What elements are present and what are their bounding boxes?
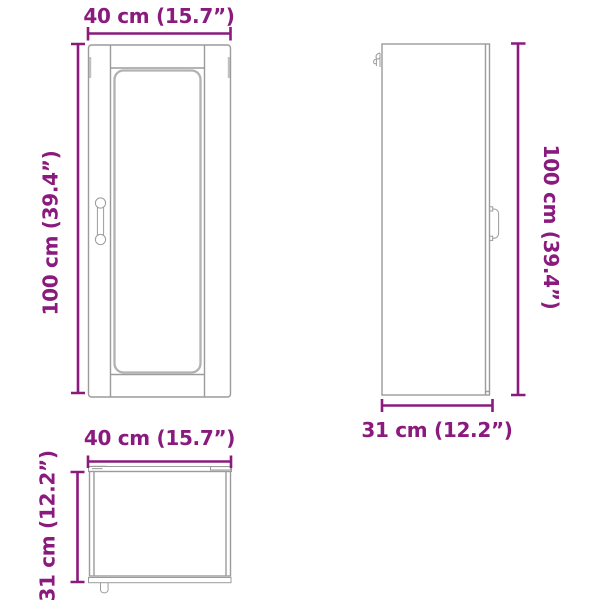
front-height-dimension-line [71,44,85,393]
side-depth-label: 31 cm (12.2”) [361,418,512,442]
side-view-drawing [374,44,499,395]
front-width-dimension-line [88,27,231,41]
top-hinge-mark-left-icon [92,466,107,468]
top-width-label: 40 cm (15.7”) [84,426,235,450]
side-door-handle-icon [490,207,499,241]
dimension-diagram: 40 cm (15.7”) 100 cm (39.4”) 100 cm (39.… [0,0,600,600]
top-depth-label: 31 cm (12.2”) [36,450,60,600]
top-view-drawing [89,466,232,593]
dimension-diagram-page: 40 cm (15.7”) 100 cm (39.4”) 100 cm (39.… [0,0,600,600]
front-height-label: 100 cm (39.4”) [39,151,63,316]
top-door-edge [89,578,232,583]
side-cabinet-body [382,44,490,395]
side-height-dimension-line [511,44,526,396]
top-cabinet-body [90,472,231,577]
front-view-drawing [89,45,231,397]
top-depth-dimension-line [71,472,85,582]
side-hinge-icon [374,53,380,67]
top-hinge-mark-right-icon [211,467,231,470]
front-width-label: 40 cm (15.7”) [83,4,234,28]
top-handle-knob-icon [101,583,109,593]
side-depth-dimension-line [382,399,493,412]
side-height-label: 100 cm (39.4”) [539,145,563,310]
